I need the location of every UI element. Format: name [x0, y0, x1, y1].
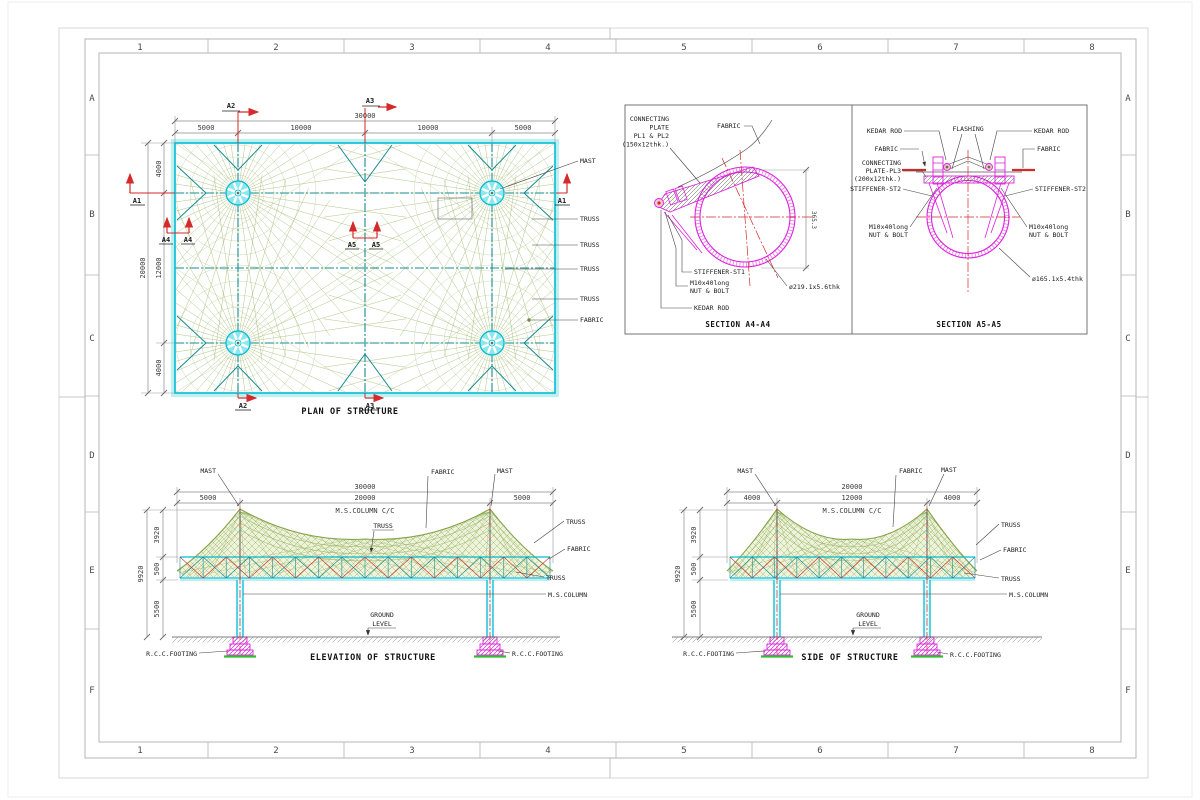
plan-dim-seg: 10000: [417, 124, 438, 132]
fabric-label: FABRIC: [875, 145, 899, 153]
section-marker-a1: A1: [133, 197, 141, 205]
grid-row: D: [1125, 451, 1130, 461]
elevation-view: 30000 5000 20000 5000 M.S.COLUMN C/C 992…: [137, 467, 591, 663]
plan-dim-seg: 5000: [198, 124, 215, 132]
grid-col: 1: [137, 43, 142, 53]
section-a4-title: SECTION A4-A4: [705, 320, 770, 329]
side-fabric: [727, 509, 977, 592]
grid-col: 2: [273, 43, 278, 53]
elev-dim-overall: 30000: [354, 483, 375, 491]
side-column-cc-label: M.S.COLUMN C/C: [822, 507, 881, 515]
grid-col: 3: [409, 746, 414, 756]
elev-dim-seg: 500: [153, 563, 161, 576]
fabric-label: FABRIC: [567, 545, 591, 553]
grid-row: C: [89, 334, 94, 344]
kedar-rod-label: KEDAR ROD: [1034, 127, 1069, 135]
ground-hatch: [172, 638, 560, 643]
grid-col: 7: [953, 43, 958, 53]
plate-label-line: (150x12thk.): [622, 141, 669, 149]
ground-level-label: GROUND: [856, 611, 880, 619]
grid-col: 7: [953, 746, 958, 756]
plan-view: 30000 5000 10000 10000 5000 20000 4000 1…: [68, 23, 662, 513]
section-details: 365.3 CONNECTING PLATE PL1 & PL2 (150x12…: [622, 105, 1087, 334]
fabric-label: FABRIC: [1037, 145, 1061, 153]
bolt-label: M10x40long: [690, 279, 729, 287]
elev-dim-seg: 5000: [514, 494, 531, 502]
ms-column-label: M.S.COLUMN: [1009, 591, 1048, 599]
plan-dim-seg: 12000: [155, 257, 163, 278]
section-a4-vdim: 365.3: [810, 211, 817, 229]
pipe-size-label: ø165.1x5.4thk: [1032, 275, 1083, 283]
rcc-footing-label: R.C.C.FOOTING: [950, 651, 1001, 659]
section-marker-a1: A1: [558, 197, 566, 205]
drawing-sheet: 1 2 3 4 5 6 7 8 1 2 3 4 5 6 7 8 A B C D …: [0, 0, 1200, 800]
fabric-label: FABRIC: [717, 122, 741, 130]
truss-label: TRUSS: [580, 295, 600, 303]
elevation-title: ELEVATION OF STRUCTURE: [310, 653, 436, 663]
plan-dim-seg: 10000: [290, 124, 311, 132]
section-marker-a3: A3: [366, 97, 374, 105]
truss-label: TRUSS: [566, 518, 586, 526]
stiffener-label: STIFFENER-ST2: [1035, 185, 1086, 193]
bolt-label: M10x40long: [1029, 223, 1068, 231]
side-view: 20000 4000 12000 4000 M.S.COLUMN C/C 992…: [672, 466, 1048, 663]
mast-label: MAST: [941, 466, 957, 474]
plate-label-line: PLATE-PL3: [866, 167, 901, 175]
grid-col: 4: [545, 43, 550, 53]
ms-column-label: M.S.COLUMN: [548, 591, 587, 599]
mast-label: MAST: [200, 467, 216, 475]
grid-col: 5: [681, 43, 686, 53]
grid-row: D: [89, 451, 94, 461]
mast-label: MAST: [497, 467, 513, 475]
truss-label: TRUSS: [580, 265, 600, 273]
plan-dim-overall-height: 20000: [139, 257, 147, 278]
plan-dim-seg: 4000: [155, 161, 163, 178]
ground-level-label: LEVEL: [372, 620, 392, 628]
kedar-rod-label: KEDAR ROD: [867, 127, 902, 135]
truss-label: TRUSS: [373, 522, 393, 530]
mast-label: MAST: [737, 467, 753, 475]
plan-section-markers: A2 A3 A2 A3 A1 A1 A4 A4 A5 A5: [130, 97, 570, 410]
side-dim-seg: 4000: [944, 494, 961, 502]
grid-col: 2: [273, 746, 278, 756]
section-marker-a5: A5: [348, 241, 356, 249]
fabric-label: FABRIC: [580, 316, 604, 324]
grid-row: E: [1125, 566, 1130, 576]
side-dim-seg: 12000: [841, 494, 862, 502]
fabric-label: FABRIC: [431, 468, 455, 476]
section-marker-a2: A2: [227, 102, 235, 110]
grid-row: E: [89, 566, 94, 576]
side-dim-seg: 3920: [690, 527, 698, 544]
truss-label: TRUSS: [580, 215, 600, 223]
mast-label: MAST: [580, 157, 596, 165]
grid-col: 1: [137, 746, 142, 756]
detail-box: [625, 105, 1087, 334]
truss-label: TRUSS: [1001, 575, 1021, 583]
elev-dim-seg: 5000: [200, 494, 217, 502]
bolt-label: NUT & BOLT: [690, 287, 729, 295]
plate-label-line: PLATE: [649, 124, 669, 132]
plan-title: PLAN OF STRUCTURE: [301, 407, 398, 417]
section-marker-a4: A4: [184, 236, 192, 244]
fabric-label: FABRIC: [1003, 546, 1027, 554]
stiffener-label: STIFFENER-ST1: [694, 268, 745, 276]
section-a5-title: SECTION A5-A5: [936, 320, 1001, 329]
grid-col: 5: [681, 746, 686, 756]
truss-label: TRUSS: [580, 241, 600, 249]
bolt-label: NUT & BOLT: [1029, 231, 1068, 239]
grid-col: 8: [1089, 43, 1094, 53]
ground-level-label: GROUND: [370, 611, 394, 619]
elev-dim-seg: 3920: [153, 527, 161, 544]
side-dim-seg: 4000: [744, 494, 761, 502]
plate-label-line: PL1 & PL2: [634, 132, 669, 140]
grid-row: F: [1125, 686, 1130, 696]
flashing-label: FLASHING: [952, 125, 983, 133]
section-marker-a5: A5: [372, 241, 380, 249]
pipe-size-label: ø219.1x5.6thk: [789, 283, 840, 291]
grid-col: 6: [817, 43, 822, 53]
grid-row: A: [89, 94, 95, 104]
side-dim-seg: 500: [690, 563, 698, 576]
rcc-footing-label: R.C.C.FOOTING: [512, 650, 563, 658]
side-dim-overall: 20000: [841, 483, 862, 491]
grid-row: B: [89, 210, 94, 220]
elev-dim-seg: 5500: [153, 601, 161, 618]
grid-col: 6: [817, 746, 822, 756]
grid-row: C: [1125, 334, 1130, 344]
grid-col: 8: [1089, 746, 1094, 756]
plan-dim-seg: 4000: [155, 360, 163, 377]
grid-row: B: [1125, 210, 1130, 220]
grid-row: F: [89, 686, 94, 696]
ground-level-label: LEVEL: [858, 620, 878, 628]
grid-col: 3: [409, 43, 414, 53]
stiffener-label: STIFFENER-ST2: [850, 185, 901, 193]
elev-dim-overall-h: 9920: [137, 566, 145, 583]
kedar-rod-label: KEDAR ROD: [694, 304, 729, 312]
rcc-footing-label: R.C.C.FOOTING: [146, 650, 197, 658]
section-marker-a4: A4: [162, 236, 170, 244]
bolt-label: M10x40long: [869, 223, 908, 231]
grid-col: 4: [545, 746, 550, 756]
plate-label-line: CONNECTING: [630, 115, 669, 123]
bolt-label: NUT & BOLT: [869, 231, 908, 239]
elev-dim-seg: 20000: [354, 494, 375, 502]
side-title: SIDE OF STRUCTURE: [801, 653, 898, 663]
rcc-footing-label: R.C.C.FOOTING: [683, 650, 734, 658]
elev-column-cc-label: M.S.COLUMN C/C: [335, 507, 394, 515]
side-dim-seg: 5500: [690, 601, 698, 618]
truss-label: TRUSS: [546, 574, 566, 582]
plan-dim-seg: 5000: [515, 124, 532, 132]
side-dim-overall-h: 9920: [674, 566, 682, 583]
ground-hatch: [672, 638, 1042, 643]
fabric-label: FABRIC: [899, 467, 923, 475]
grid-row: A: [1125, 94, 1131, 104]
plate-label-line: CONNECTING: [862, 159, 901, 167]
plate-label-line: (200x12thk.): [854, 175, 901, 183]
section-marker-a2: A2: [239, 402, 247, 410]
elevation-fabric: [177, 509, 553, 592]
truss-label: TRUSS: [1001, 521, 1021, 529]
